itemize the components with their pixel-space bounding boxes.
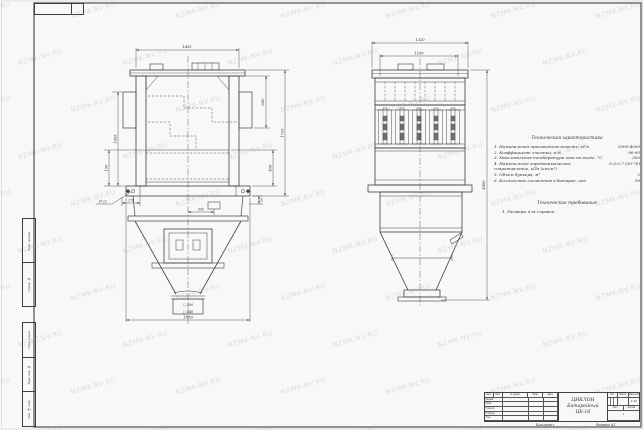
tech-char-item: 6. Количество элементов в батарее, шт 16: [494, 178, 640, 183]
side-stamp-lower: Подп. и дата Взам. инв. № Инв. № подл.: [22, 322, 36, 427]
tech-char-text: 6. Количество элементов в батарее, шт: [494, 178, 632, 183]
title-block-left: Изм. Лист № докум. Подп. Дата Разраб. Пр…: [485, 393, 559, 421]
tb-row-utv: Утв.: [485, 416, 503, 421]
front-view-dimensions: [96, 48, 289, 322]
tb-sheets-value: 1: [608, 411, 639, 421]
tech-char-text: 4. Номинальное аэродинамическое сопротив…: [494, 161, 606, 171]
technical-characteristics: Техническая характеристика 1. Номинальна…: [494, 136, 640, 183]
title-block-name: ЦИКЛОН Батарейный ЦБ-16: [559, 393, 608, 421]
title-block-right: Лит. Масса Масштаб 1:10 Лист Листов 1: [608, 393, 639, 421]
dim-label-top-width: 1435: [182, 45, 192, 49]
tech-char-value: 0,5-0,7 (50-70): [609, 161, 640, 171]
tech-reqs-title: Технические требования: [494, 201, 640, 207]
side-view-dim-labels: 1320 1100 4400: [414, 38, 486, 190]
dim-label-side-top-inner: 1100: [414, 51, 424, 55]
tech-char-value: 2000-4000: [618, 144, 640, 149]
dim-label-bottom-width: 1800: [183, 314, 193, 319]
tech-reqs-item: 1. Размеры для справок.: [494, 209, 640, 214]
tech-char-item: 4. Номинальное аэродинамическое сопротив…: [494, 161, 640, 171]
dim-label-left-lower: 150: [105, 164, 109, 172]
tech-char-value: 300: [632, 155, 640, 160]
tech-chars-title: Техническая характеристика: [494, 136, 640, 142]
format-label: Формат А1: [596, 423, 616, 427]
tech-char-text: 5. Объем бункера, м³: [494, 172, 634, 177]
dim-label-right-inner: 600: [261, 98, 265, 106]
tech-char-value: 2: [637, 172, 640, 177]
copied-label: Копировал: [536, 423, 554, 427]
stamp-label: Взам. инв. №: [27, 365, 31, 384]
dim-label-right-lower: 450: [269, 164, 273, 173]
side-view: [368, 58, 472, 308]
dim-label-port-offset: 300: [198, 208, 204, 212]
corner-stamp-value: [35, 4, 72, 14]
side-stamp-upper: Перв. примен. Справ. №: [22, 218, 36, 307]
stamp-label: Перв. примен.: [27, 231, 31, 251]
side-view-dimensions: [372, 41, 490, 300]
dim-label-side-height: 4400: [482, 180, 486, 191]
dim-label-hole: Ø 22: [98, 199, 107, 204]
corner-stamp: [34, 3, 84, 15]
stamp-label: Подп. и дата: [27, 331, 31, 349]
technical-requirements: Технические требования 1. Размеры для сп…: [494, 201, 640, 215]
tech-char-item: 2. Коэффициент очистки, в % 90-95: [494, 150, 640, 155]
tech-char-text: 3. Максимальная температура газа на вход…: [494, 155, 629, 160]
battery-tube-groups: [379, 108, 460, 144]
dim-label-right-overall: 1735: [281, 128, 285, 138]
tech-char-value: 16: [635, 178, 640, 183]
stamp-label: Инв. № подл.: [27, 399, 31, 418]
tb-scale-value: 1:10: [629, 398, 639, 406]
tech-char-item: 3. Максимальная температура газа на вход…: [494, 155, 640, 160]
drawing-canvas: 1435 600 450 1735 1005 150 Ø 22 270 300 …: [0, 0, 644, 430]
doc-name-line3: ЦБ-16: [576, 410, 591, 416]
front-view: [123, 56, 252, 324]
tech-char-text: 1. Номинальная производительность, м³/ч: [494, 144, 615, 149]
tech-char-item: 5. Объем бункера, м³ 2: [494, 172, 640, 177]
dim-label-side-top-outer: 1320: [415, 38, 425, 42]
title-block: Изм. Лист № докум. Подп. Дата Разраб. Пр…: [484, 392, 640, 422]
dim-label-left-height: 1005: [114, 134, 118, 144]
tech-char-text: 2. Коэффициент очистки, в %: [494, 150, 625, 155]
drawing-sheet: 1435 600 450 1735 1005 150 Ø 22 270 300 …: [0, 0, 644, 430]
stamp-label: Справ. №: [27, 277, 31, 291]
dim-label-right-small: 60: [260, 198, 264, 202]
sheet-frame: [2, 1, 643, 429]
tech-char-value: 90-95: [628, 150, 640, 155]
dim-label-outlet-outer: □ 440: [183, 310, 193, 314]
tech-char-item: 1. Номинальная производительность, м³/ч …: [494, 144, 640, 149]
dim-label-outlet-inner: □ 400: [183, 303, 193, 307]
dim-label-base-left: 270: [127, 199, 134, 203]
